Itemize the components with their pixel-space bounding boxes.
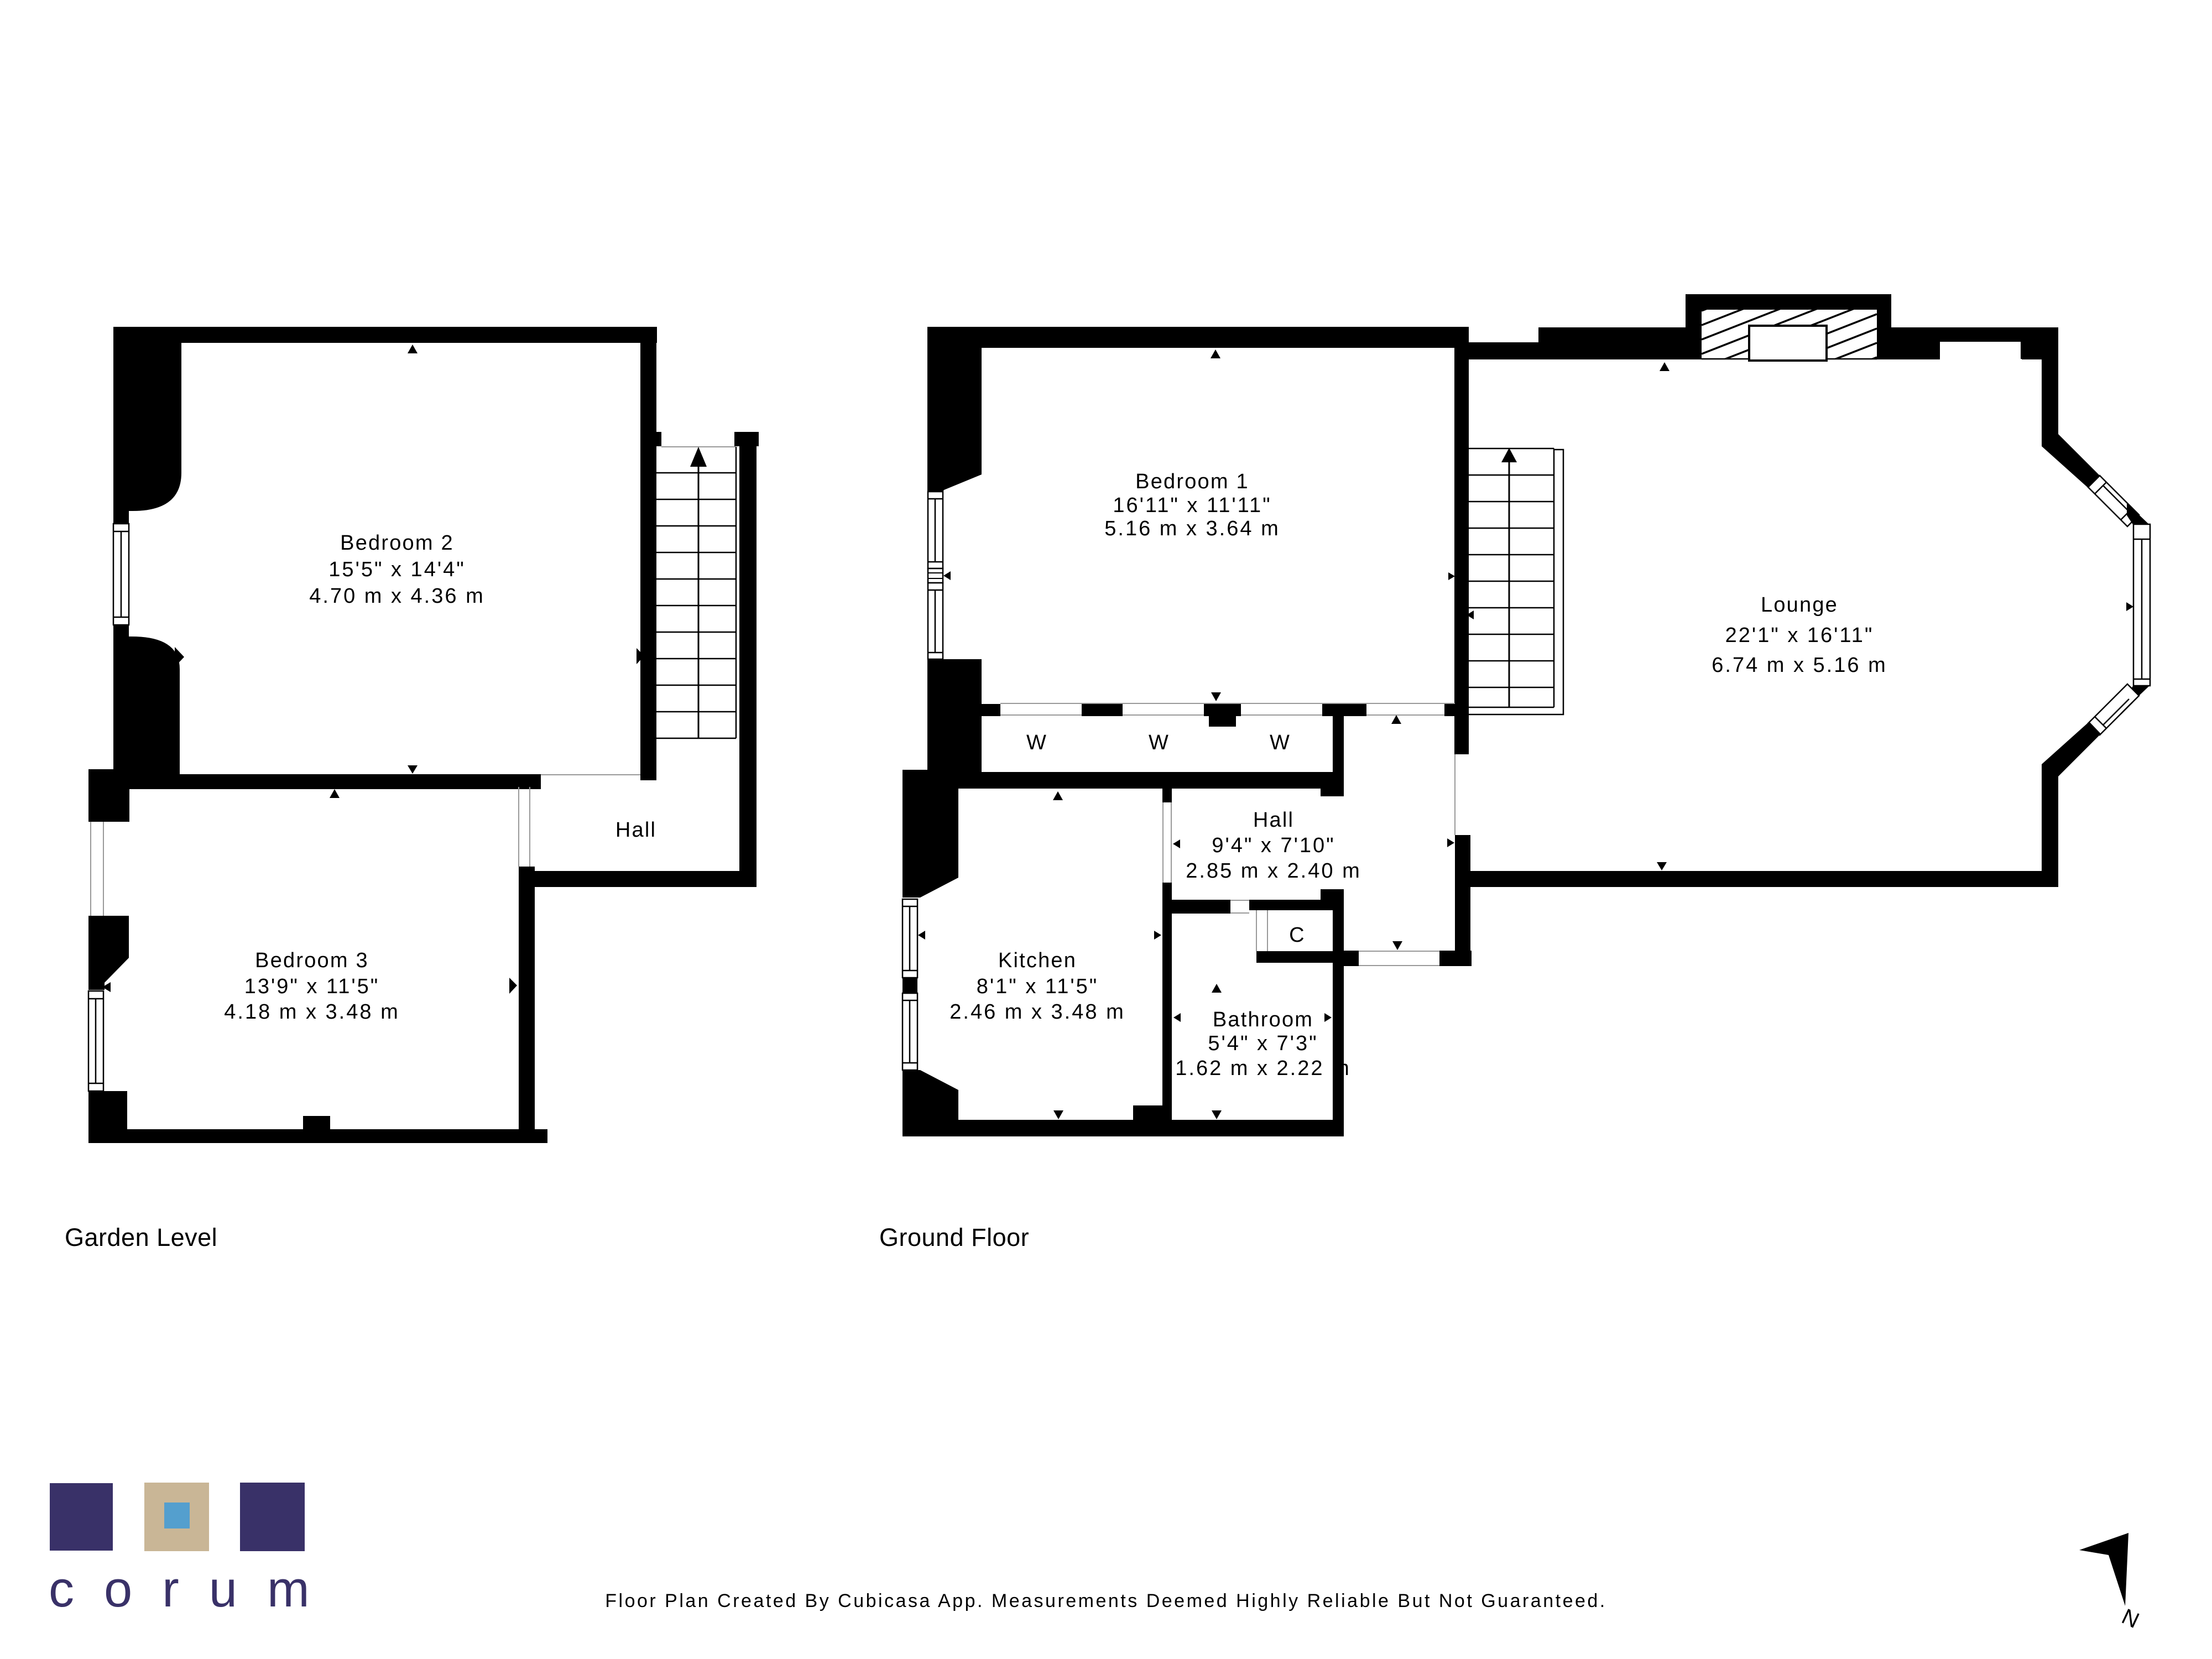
svg-text:13'9" x 11'5": 13'9" x 11'5" bbox=[244, 975, 380, 998]
svg-text:W: W bbox=[1149, 731, 1170, 754]
svg-text:5'4" x 7'3": 5'4" x 7'3" bbox=[1208, 1032, 1318, 1055]
svg-text:Bathroom: Bathroom bbox=[1213, 1008, 1313, 1031]
svg-text:W: W bbox=[1270, 731, 1291, 754]
svg-text:Bedroom 2: Bedroom 2 bbox=[340, 531, 454, 555]
svg-text:Hall: Hall bbox=[1253, 808, 1294, 832]
svg-text:Hall: Hall bbox=[615, 818, 656, 842]
svg-text:8'1" x 11'5": 8'1" x 11'5" bbox=[977, 975, 1098, 998]
svg-text:Garden Level: Garden Level bbox=[65, 1223, 217, 1251]
svg-text:5.16 m x 3.64 m: 5.16 m x 3.64 m bbox=[1104, 517, 1280, 540]
svg-text:corum: corum bbox=[49, 1561, 340, 1618]
svg-text:9'4" x 7'10": 9'4" x 7'10" bbox=[1212, 834, 1335, 857]
svg-text:6.74 m x 5.16 m: 6.74 m x 5.16 m bbox=[1712, 654, 1887, 677]
svg-text:C: C bbox=[1289, 924, 1306, 947]
svg-text:15'5" x 14'4": 15'5" x 14'4" bbox=[328, 558, 465, 581]
svg-text:W: W bbox=[1026, 731, 1047, 754]
svg-text:22'1" x 16'11": 22'1" x 16'11" bbox=[1725, 624, 1874, 647]
svg-text:Ground Floor: Ground Floor bbox=[879, 1223, 1029, 1251]
svg-text:4.70 m x 4.36 m: 4.70 m x 4.36 m bbox=[309, 585, 484, 608]
svg-text:Bedroom 1: Bedroom 1 bbox=[1135, 470, 1249, 493]
svg-text:2.85 m x 2.40 m: 2.85 m x 2.40 m bbox=[1186, 859, 1361, 883]
svg-text:Floor Plan Created By Cubicasa: Floor Plan Created By Cubicasa App. Meas… bbox=[605, 1590, 1607, 1611]
svg-text:Lounge: Lounge bbox=[1761, 593, 1838, 617]
svg-text:16'11" x 11'11": 16'11" x 11'11" bbox=[1113, 494, 1271, 517]
svg-text:4.18 m x 3.48 m: 4.18 m x 3.48 m bbox=[224, 1000, 399, 1024]
svg-text:2.46 m x 3.48 m: 2.46 m x 3.48 m bbox=[950, 1000, 1125, 1024]
svg-text:Kitchen: Kitchen bbox=[998, 949, 1077, 972]
svg-text:Bedroom 3: Bedroom 3 bbox=[255, 949, 369, 972]
svg-text:1.62 m x 2.22 m: 1.62 m x 2.22 m bbox=[1175, 1057, 1350, 1080]
